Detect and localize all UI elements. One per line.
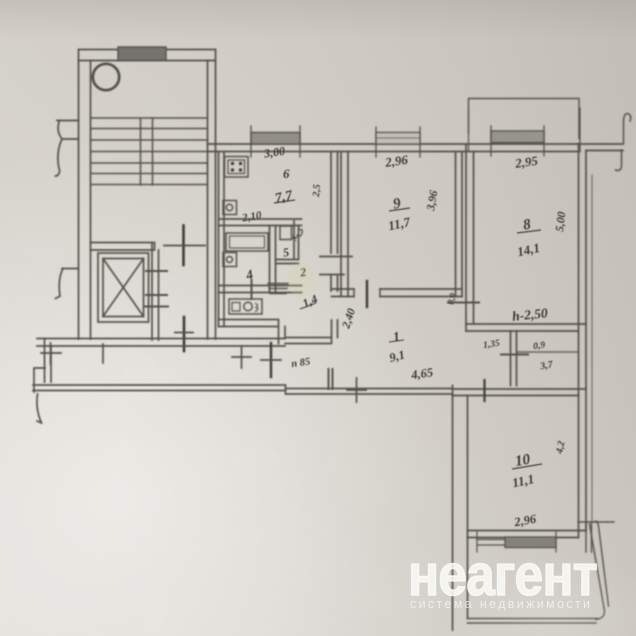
svg-text:система недвижимости: система недвижимости (410, 597, 592, 611)
